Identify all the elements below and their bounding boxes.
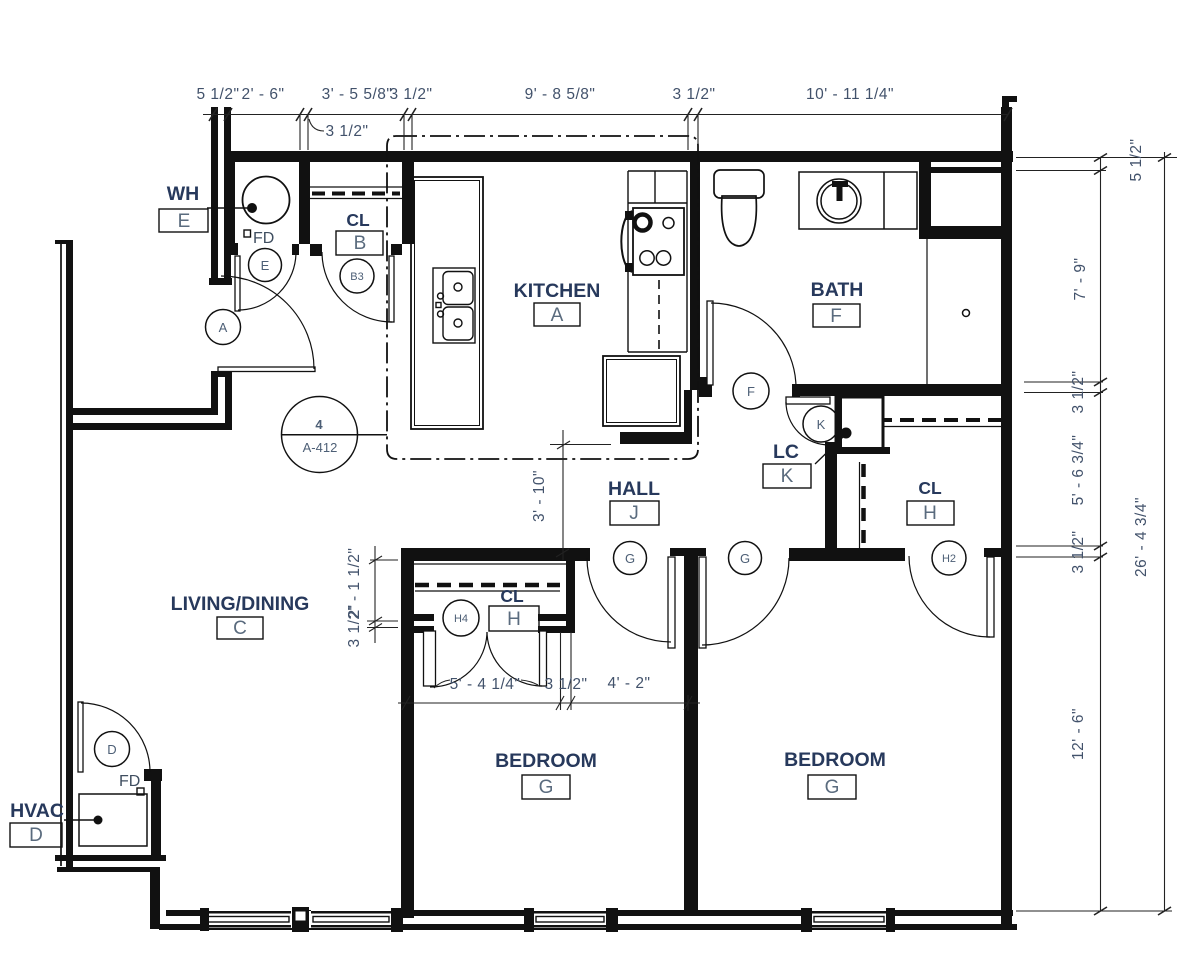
svg-text:KITCHEN: KITCHEN bbox=[514, 280, 601, 302]
svg-text:BEDROOM: BEDROOM bbox=[495, 750, 597, 772]
svg-text:LIVING/DINING: LIVING/DINING bbox=[171, 593, 310, 615]
svg-text:9' - 8 5/8": 9' - 8 5/8" bbox=[525, 86, 596, 103]
svg-text:E: E bbox=[178, 211, 191, 232]
svg-text:3 1/2": 3 1/2" bbox=[545, 676, 588, 693]
svg-text:2' - 6": 2' - 6" bbox=[242, 86, 285, 103]
svg-text:A: A bbox=[219, 320, 228, 335]
svg-text:H: H bbox=[507, 609, 521, 630]
svg-text:A: A bbox=[551, 305, 564, 326]
svg-text:D: D bbox=[107, 742, 116, 757]
svg-text:C: C bbox=[233, 618, 247, 639]
svg-text:3 1/2": 3 1/2" bbox=[1070, 371, 1087, 414]
svg-text:10' - 11 1/4": 10' - 11 1/4" bbox=[806, 86, 894, 103]
svg-text:BATH: BATH bbox=[811, 279, 864, 301]
svg-text:FD: FD bbox=[119, 773, 140, 790]
svg-text:3' - 5 5/8": 3' - 5 5/8" bbox=[322, 86, 393, 103]
svg-text:A-412: A-412 bbox=[303, 440, 338, 455]
svg-text:HALL: HALL bbox=[608, 478, 660, 500]
svg-text:D: D bbox=[29, 825, 43, 846]
svg-text:F: F bbox=[747, 384, 755, 399]
svg-text:3 1/2": 3 1/2" bbox=[1070, 531, 1087, 574]
svg-text:H: H bbox=[923, 503, 937, 524]
svg-text:J: J bbox=[629, 503, 639, 524]
svg-text:K: K bbox=[817, 417, 826, 432]
svg-text:CL: CL bbox=[346, 210, 370, 230]
svg-text:LC: LC bbox=[773, 441, 799, 463]
svg-text:7' - 9": 7' - 9" bbox=[1072, 258, 1089, 301]
svg-text:HVAC: HVAC bbox=[10, 800, 64, 822]
svg-text:CL: CL bbox=[500, 586, 524, 606]
svg-text:3 1/2": 3 1/2" bbox=[326, 123, 369, 140]
svg-text:5' - 4 1/4": 5' - 4 1/4" bbox=[450, 676, 521, 693]
svg-text:F: F bbox=[830, 306, 842, 327]
svg-text:H2: H2 bbox=[942, 553, 956, 565]
svg-text:FD: FD bbox=[253, 230, 274, 247]
svg-text:G: G bbox=[740, 551, 750, 566]
svg-text:26' - 4 3/4": 26' - 4 3/4" bbox=[1133, 497, 1150, 577]
svg-text:3' - 10": 3' - 10" bbox=[531, 470, 548, 522]
svg-text:4: 4 bbox=[315, 417, 323, 432]
svg-text:4' - 2": 4' - 2" bbox=[608, 675, 651, 692]
svg-text:3 1/2": 3 1/2" bbox=[673, 86, 716, 103]
svg-text:G: G bbox=[539, 777, 554, 798]
svg-text:B3: B3 bbox=[350, 271, 363, 283]
svg-text:BEDROOM: BEDROOM bbox=[784, 749, 886, 771]
svg-text:3 1/2": 3 1/2" bbox=[390, 86, 433, 103]
svg-text:5 1/2": 5 1/2" bbox=[197, 86, 240, 103]
svg-text:B: B bbox=[354, 233, 367, 254]
svg-text:H4: H4 bbox=[454, 613, 468, 625]
svg-text:5 1/2": 5 1/2" bbox=[1128, 139, 1145, 182]
svg-text:G: G bbox=[625, 551, 635, 566]
svg-text:E: E bbox=[261, 258, 270, 273]
svg-text:WH: WH bbox=[167, 183, 200, 205]
svg-text:3 1/2": 3 1/2" bbox=[346, 605, 363, 648]
svg-text:CL: CL bbox=[918, 478, 942, 498]
svg-text:G: G bbox=[825, 777, 840, 798]
svg-text:K: K bbox=[781, 466, 794, 487]
svg-text:5' - 6 3/4": 5' - 6 3/4" bbox=[1070, 435, 1087, 506]
svg-text:12' - 6": 12' - 6" bbox=[1070, 708, 1087, 760]
